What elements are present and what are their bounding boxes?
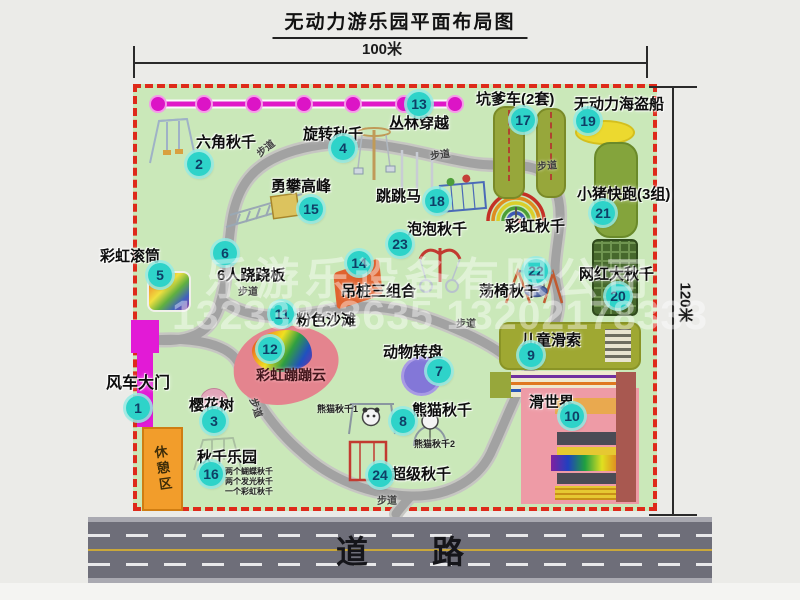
marker-20: 20 (606, 284, 630, 308)
attraction-label-20: 网红大秋千 (579, 263, 654, 284)
panda-swing-2-label: 熊猫秋千2 (414, 437, 455, 450)
marker-17: 17 (511, 108, 535, 132)
marker-3: 3 (202, 409, 226, 433)
swing-paradise-note-3: 一个彩虹秋千 (225, 486, 273, 497)
park-layout-plan: 无动力游乐园平面布局图 100米 120米 休憩区 (0, 0, 800, 600)
attraction-label-15: 勇攀高峰 (271, 175, 331, 196)
marker-21: 21 (591, 201, 615, 225)
attraction-label-22: 荡椅秋千 (479, 280, 539, 301)
attraction-label-8: 熊猫秋千 (412, 399, 472, 420)
attraction-label-6: 6人跷跷板 (217, 264, 285, 285)
dimension-width-label: 100米 (362, 38, 402, 59)
marker-2: 2 (187, 152, 211, 176)
attraction-label-1: 风车大门 (106, 369, 170, 393)
attraction-label-2: 六角秋千 (196, 131, 256, 152)
marker-19: 19 (576, 109, 600, 133)
marker-23: 23 (388, 232, 412, 256)
attraction-label-rainbow-swing: 彩虹秋千 (505, 215, 565, 236)
path-label: 步道 (377, 492, 397, 507)
marker-11: 11 (270, 302, 294, 326)
attraction-label-11: 粉色沙滩 (296, 309, 356, 330)
dimension-tick-top (649, 86, 697, 88)
attraction-label-21: 小猪快跑(3组) (577, 183, 670, 204)
attraction-label-23: 泡泡秋千 (407, 218, 467, 239)
attraction-label-18: 跳跳马 (376, 185, 421, 206)
dimension-line-top (134, 62, 648, 64)
bottom-band (0, 583, 800, 600)
attraction-label-14: 吊桩三组合 (341, 280, 416, 301)
road-label: 道路 (120, 522, 744, 578)
attraction-label-5: 彩虹滚筒 (100, 245, 160, 266)
marker-15: 15 (299, 197, 323, 221)
attraction-label-17: 坑爹车(2套) (476, 88, 554, 109)
marker-12: 12 (258, 337, 282, 361)
marker-4: 4 (331, 136, 355, 160)
rest-area-label: 休憩区 (150, 444, 175, 494)
marker-16: 16 (199, 462, 223, 486)
marker-1: 1 (126, 396, 150, 420)
marker-8: 8 (391, 409, 415, 433)
dimension-line-right (672, 86, 674, 516)
dimension-tick-left (133, 46, 135, 78)
marker-14: 14 (347, 251, 371, 275)
rest-area-box: 休憩区 (142, 427, 183, 511)
path-label: 步道 (456, 315, 476, 330)
marker-10: 10 (560, 404, 584, 428)
kart-track-icon (536, 108, 566, 198)
marker-5: 5 (148, 263, 172, 287)
zipline-block-icon (490, 372, 513, 398)
marker-22: 22 (524, 259, 548, 283)
marker-6: 6 (213, 241, 237, 265)
dimension-height-label: 120米 (676, 273, 697, 333)
page-title: 无动力游乐园平面布局图 (272, 7, 527, 39)
marker-13: 13 (407, 92, 431, 116)
marker-9: 9 (519, 343, 543, 367)
marker-7: 7 (427, 359, 451, 383)
windmill-gate-icon (131, 320, 159, 353)
attraction-label-24: 超级秋千 (391, 463, 451, 484)
path-label: 步道 (429, 145, 451, 163)
path-label: 步道 (238, 283, 258, 298)
marker-24: 24 (368, 463, 392, 487)
path-label: 步道 (536, 156, 557, 173)
attraction-label-12: 彩虹蹦蹦云 (256, 365, 326, 385)
road: 道路 (88, 517, 712, 583)
marker-18: 18 (425, 189, 449, 213)
dimension-tick-bottom (649, 514, 697, 516)
dimension-tick-right (646, 46, 648, 78)
panda-swing-1-label: 熊猫秋千1 (317, 402, 358, 415)
